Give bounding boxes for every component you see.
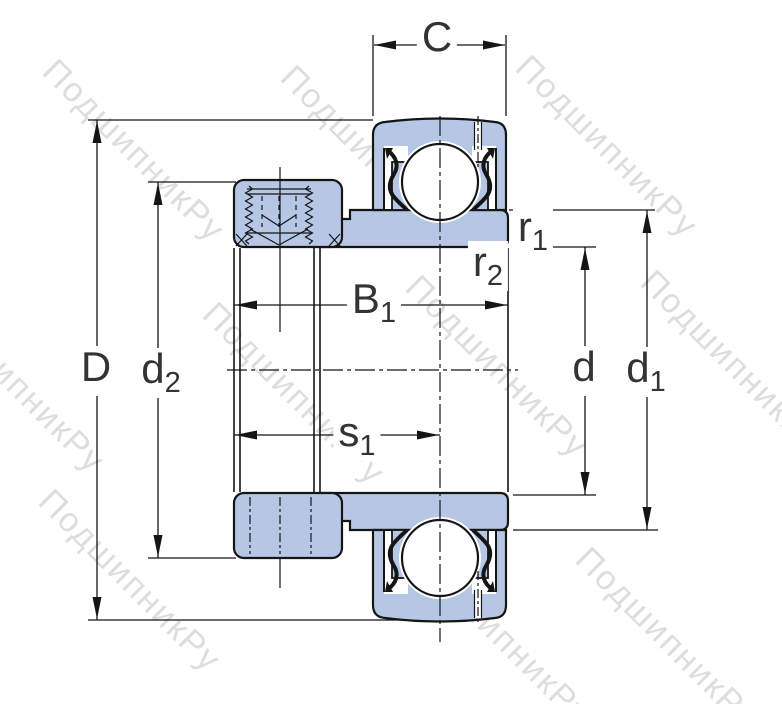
label-d2: d2 [136, 348, 186, 398]
locking-collar-bottom [234, 493, 342, 588]
label-d1: d1 [621, 347, 671, 397]
label-B1: B1 [347, 278, 401, 328]
label-C: C [417, 16, 457, 66]
label-r1: r1 [513, 206, 553, 256]
label-D: D [76, 346, 116, 396]
label-r2: r2 [468, 241, 508, 291]
inner-ring-extension-bottom [320, 493, 508, 530]
label-s1: s1 [333, 411, 380, 461]
label-d: d [567, 346, 600, 396]
bearing-dimension-drawing: ПодшипникРу ПодшипникРу ПодшипникРу Подш… [0, 0, 782, 704]
